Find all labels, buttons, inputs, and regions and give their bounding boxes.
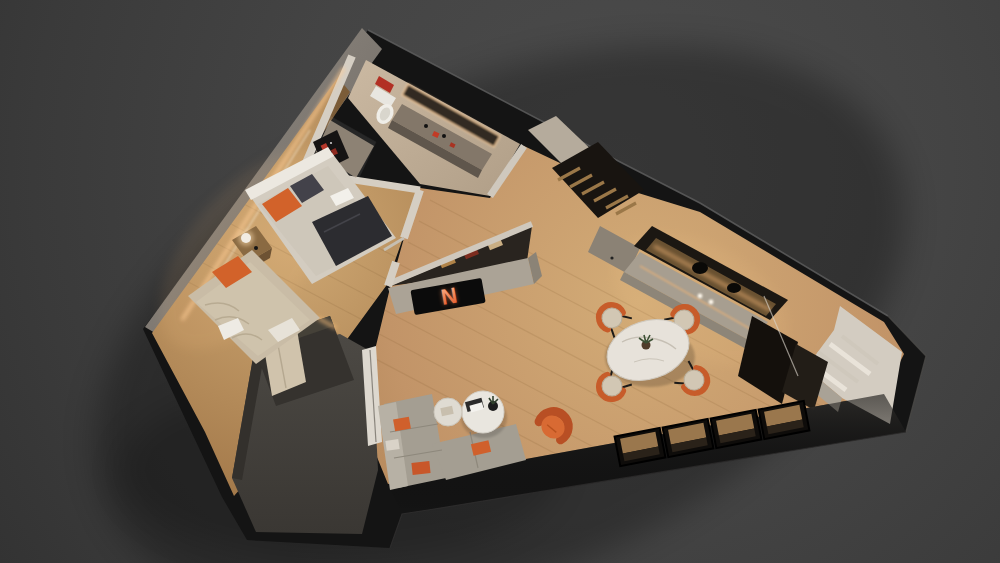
faucet [442, 134, 446, 138]
orange-throw-pillow [411, 461, 430, 475]
table-lamp [241, 233, 251, 243]
door-handle [610, 256, 613, 259]
poster-white-detail [330, 142, 332, 144]
kettle [727, 283, 741, 293]
coffee-table-large [462, 391, 504, 433]
glass [698, 294, 703, 299]
clock [254, 246, 258, 250]
coffee-machine [692, 262, 708, 274]
floorplan-render-stage: N N [0, 0, 1000, 563]
white-throw-pillow [385, 439, 399, 451]
glass [709, 300, 714, 305]
apartment-3d-floorplan: N N [0, 0, 1000, 563]
faucet [424, 124, 428, 128]
